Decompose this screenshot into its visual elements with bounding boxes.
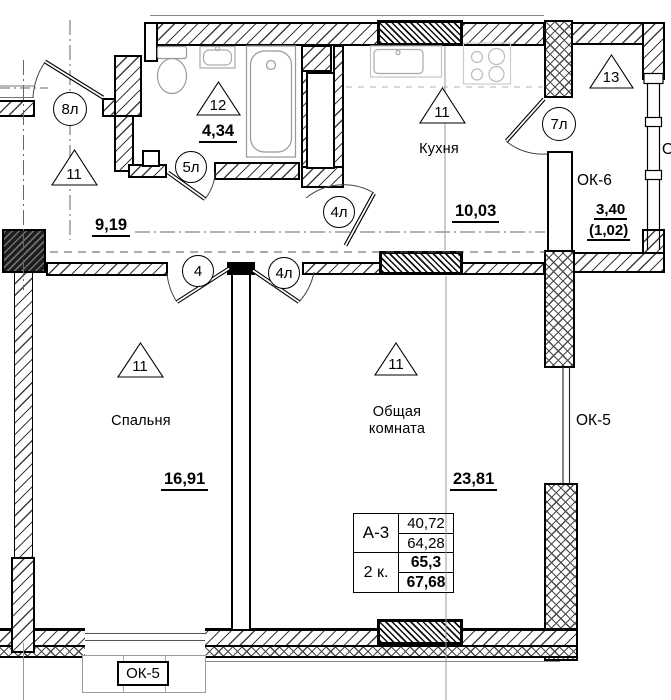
area-label-hallway: 9,19 [92, 216, 130, 237]
info-table-living-area: 40,72 [398, 514, 453, 533]
info-table-total-area: 67,68 [398, 572, 453, 592]
wall-left-column [11, 557, 35, 653]
area-label-bedroom: 16,91 [161, 470, 208, 491]
wall-bedroom-west [14, 272, 33, 559]
door-tag-entrance: 8л [53, 92, 87, 126]
zone-number-living: 11 [381, 356, 411, 373]
room-label-living-line2: комната [352, 421, 442, 438]
vent-block-top [377, 20, 463, 46]
wall-partition [231, 275, 251, 629]
wall-loggia-south [573, 252, 665, 273]
wall-ne-corner [642, 22, 665, 80]
window-ok5-right [563, 367, 570, 484]
area-label-bathroom: 4,34 [199, 122, 237, 143]
door-tag-loggia: 7л [542, 107, 576, 141]
door-tag-entrance-label: 8л [61, 101, 78, 118]
edge-partial-mark: О [662, 141, 671, 159]
door-tag-bedroom: 4 [182, 255, 214, 287]
window-tag-ok6: ОК-6 [577, 172, 612, 190]
door-tag-loggia-label: 7л [550, 116, 567, 133]
wall-kitchen-loggia [544, 20, 573, 98]
area-label-loggia: 3,40 [594, 201, 627, 220]
door-tag-bathroom-label: 5л [182, 159, 199, 176]
wall-bath-south-right [214, 162, 300, 180]
room-label-living: Общая комната [352, 404, 442, 437]
wall-top-main [150, 22, 545, 46]
door-tag-bathroom: 5л [175, 151, 207, 183]
wall-bath-door-jamb [142, 150, 160, 167]
window-tag-ok5-bottom: ОК-5 [117, 661, 169, 686]
door-tag-kitchen-label: 4л [330, 204, 347, 221]
zone-number-loggia: 13 [596, 69, 626, 86]
kitchen-sink-fixture [371, 46, 442, 77]
wall-bedroom-north [46, 262, 168, 276]
floor-plan: 8л 5л 4 4л 4л 7л 11 12 11 13 11 11 9,19 … [0, 0, 671, 700]
wall-east-column [544, 250, 575, 368]
area-label-living: 23,81 [450, 470, 497, 491]
door-loggia-swing [506, 99, 547, 154]
window-tag-ok5-bottom-label: ОК-5 [126, 665, 160, 682]
zone-number-bedroom: 11 [125, 358, 155, 375]
wall-partition-cap [227, 262, 255, 275]
duct-shaft [306, 72, 335, 169]
bath-sink-fixture [200, 47, 235, 69]
window-schedule-box: ОК-5 [82, 655, 206, 693]
wall-entrance-left [0, 100, 35, 117]
wall-bath-west-upper [114, 55, 142, 117]
zone-number-bathroom: 12 [203, 97, 233, 114]
bathtub-fixture [247, 46, 296, 157]
door-tag-living: 4л [268, 257, 300, 289]
window-loggia-right [644, 74, 663, 251]
room-label-kitchen: Кухня [408, 141, 470, 158]
zone-number-kitchen: 11 [427, 104, 457, 121]
wall-left-block [2, 229, 46, 273]
door-tag-kitchen: 4л [323, 196, 355, 228]
wall-bath-nw-jamb [144, 22, 158, 62]
wall-living-north-left [302, 262, 381, 275]
info-table: А-3 40,72 64,28 2 к. 65,3 67,68 [353, 513, 454, 593]
wall-living-north-right [461, 262, 545, 275]
vent-block-bottom [377, 619, 463, 645]
wall-loggia-partition [547, 151, 573, 252]
wall-bath-se-corner [301, 166, 344, 188]
door-tag-living-label: 4л [275, 265, 292, 282]
area-label-kitchen: 10,03 [452, 202, 499, 223]
zone-number-hallway: 11 [59, 166, 89, 183]
vent-block-corridor [379, 251, 463, 275]
stove-fixture [464, 43, 511, 84]
area-label-loggia-reduced: (1,02) [587, 222, 630, 241]
room-label-living-line1: Общая [352, 404, 442, 421]
wall-top-loggia [571, 22, 644, 45]
info-table-flat-type: 2 к. [354, 552, 398, 592]
info-table-series: А-3 [354, 514, 398, 552]
info-table-area-coeff: 65,3 [398, 552, 453, 572]
wall-duct-top [301, 45, 332, 72]
room-label-bedroom: Спальня [100, 413, 182, 430]
door-tag-bedroom-label: 4 [194, 263, 202, 280]
toilet-fixture [158, 47, 187, 94]
info-table-area-no-loggia: 64,28 [398, 533, 453, 552]
window-tag-ok5-right: ОК-5 [576, 412, 611, 430]
